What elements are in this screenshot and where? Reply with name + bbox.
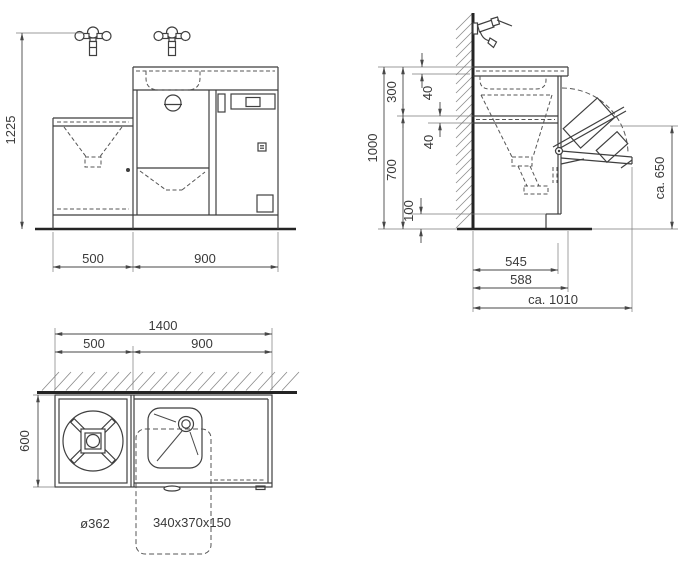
dim-side-worktop-depth: 588 [510, 272, 532, 287]
front-handle-right [256, 486, 265, 490]
side-view: 1000 300 700 40 40 100 ca. 650 545 588 c… [365, 13, 678, 312]
label-round-bowl-diameter: ø362 [80, 516, 110, 531]
control-switch [218, 94, 225, 112]
dim-side-upper-section: 300 [384, 81, 399, 103]
label-basin-size: 340x370x150 [153, 515, 231, 530]
technical-drawing: 1225 500 900 [0, 0, 680, 576]
plan-wall-hatching [42, 372, 299, 391]
fold-down-flap-open [553, 88, 632, 168]
dim-side-worktop-offset: 40 [420, 86, 435, 100]
hidden-trap-upper [512, 157, 532, 166]
front-view: 1225 500 900 [3, 27, 296, 272]
dim-side-lower-section: 700 [384, 159, 399, 181]
dim-side-total-height: 1000 [365, 134, 380, 163]
dim-plan-left-width: 500 [83, 336, 105, 351]
front-left-cabinet [53, 118, 133, 229]
side-dimensions: 1000 300 700 40 40 100 ca. 650 545 588 c… [365, 53, 678, 312]
plan-view: 1400 500 900 600 ø362 340x370x150 [17, 318, 299, 554]
control-display [246, 98, 260, 107]
dim-front-right-width: 900 [194, 251, 216, 266]
washer-lock-knob [165, 95, 181, 111]
faucet-left-icon [75, 27, 111, 56]
wall-faucet-icon [473, 17, 512, 48]
flap-shelf-top [561, 151, 632, 157]
door-knob [126, 168, 130, 172]
hidden-sink-outline [146, 71, 200, 90]
dim-side-flap-height: ca. 650 [652, 157, 667, 200]
dim-side-open-depth: ca. 1010 [528, 292, 578, 307]
dim-plan-depth: 600 [17, 430, 32, 452]
hidden-drain-box [85, 157, 101, 167]
side-cabinet-section [473, 67, 568, 229]
open-door-panel-small [596, 132, 628, 163]
drawing-canvas: 1225 500 900 [0, 0, 680, 576]
hidden-funnel-left [64, 127, 87, 158]
dim-front-left-width: 500 [82, 251, 104, 266]
hidden-trap-lower [524, 186, 548, 194]
dim-front-height: 1225 [3, 116, 18, 145]
hidden-sink-section [480, 76, 546, 89]
dim-side-mid-offset: 40 [421, 135, 436, 149]
rect-sink-rim [148, 408, 202, 468]
faucet-right-icon [154, 27, 190, 56]
coin-trap [258, 143, 266, 151]
front-dimensions: 1225 500 900 [3, 33, 278, 272]
dim-plan-right-width: 900 [191, 336, 213, 351]
service-hatch [257, 195, 273, 212]
dim-side-body-depth: 545 [505, 254, 527, 269]
front-handle [164, 486, 180, 491]
hidden-funnel-right [99, 127, 122, 158]
plan-round-bowl [63, 411, 123, 471]
hidden-funnel-section-right [533, 95, 552, 157]
front-right-unit [133, 67, 278, 229]
dim-side-plinth-height: 100 [401, 200, 416, 222]
dim-plan-total-width: 1400 [149, 318, 178, 333]
wall-hatching [456, 14, 472, 228]
hidden-funnel-section-left [481, 95, 512, 157]
